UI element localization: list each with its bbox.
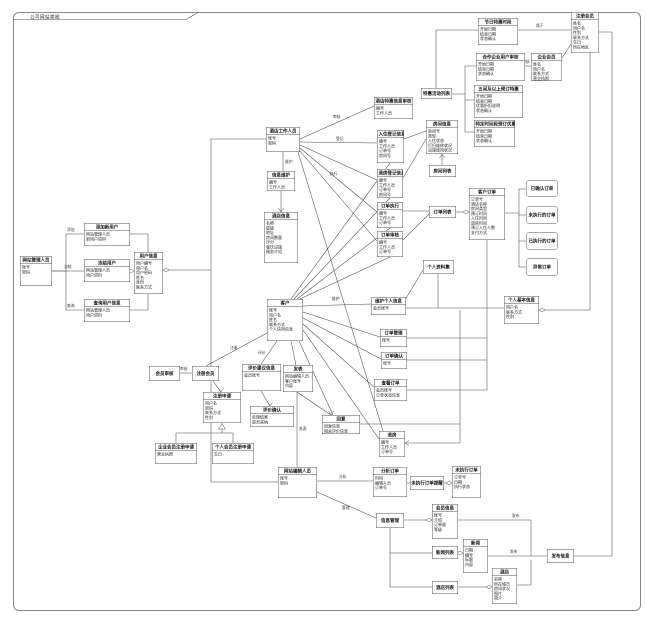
node-title: 网站编辑人员 xyxy=(279,468,317,476)
node-fields: 账号用户名姓名联系方式个人信用信息 xyxy=(268,307,303,333)
node-title: 订单确认 xyxy=(382,353,407,361)
edge-line xyxy=(403,214,429,240)
node-title: 未执行订单提醒 xyxy=(410,480,444,486)
edge-label: 登记 xyxy=(336,136,344,141)
node-reg-apply[interactable]: 注册申请用户名密码联系方式性别 xyxy=(203,392,241,423)
node-info-manage[interactable]: 信息管理 xyxy=(376,513,404,528)
edge-line xyxy=(452,66,476,94)
edge-line xyxy=(519,215,526,241)
node-fields: 开始日期结束日期状态确认 xyxy=(479,26,518,42)
edge-line xyxy=(303,324,374,387)
node-title: 特惠活动列表 xyxy=(422,91,452,97)
node-fields: 编号工作人员 xyxy=(268,179,295,191)
node-field: 性别 xyxy=(205,415,239,420)
node-title: 评价确认 xyxy=(251,407,294,415)
node-publish-info[interactable]: 发布信息 xyxy=(547,549,574,563)
node-field: 状态确认 xyxy=(478,72,523,77)
node-unexec-order[interactable]: 未执行的订单 xyxy=(526,206,558,224)
node-title: 房间列表 xyxy=(430,168,456,174)
edge-label: 查询 xyxy=(67,303,75,308)
node-field: 所在地区 xyxy=(573,45,597,50)
node-fields: 用户名密码联系方式性别 xyxy=(204,400,241,421)
node-fields: 编号工作人员 xyxy=(375,105,413,117)
node-field: 状态确认 xyxy=(476,139,513,144)
node-editor[interactable]: 网站编辑人员账号密码 xyxy=(278,467,317,498)
node-field: 工作人员 xyxy=(376,111,411,116)
node-fields: 姓名用户名联系方式营业执照 xyxy=(532,61,562,81)
node-fields: 账号 xyxy=(382,360,407,367)
node-title: 企业会员注册申请 xyxy=(156,444,197,452)
node-field: 内容 xyxy=(465,562,486,567)
edge-line xyxy=(390,553,432,587)
node-title: 已确认订单 xyxy=(527,186,558,192)
node-title: 未执行订单 xyxy=(453,467,481,475)
node-fields: 营业执照 xyxy=(156,451,197,458)
node-field: 账号 xyxy=(382,338,405,343)
node-field: 个人信用信息 xyxy=(269,327,301,332)
node-promo-list[interactable]: 特惠活动列表 xyxy=(421,88,452,99)
node-title: 酒店 xyxy=(493,569,517,577)
edge-line xyxy=(294,198,390,299)
node-fields: 编号工作人员订单号房间号 xyxy=(378,177,403,198)
node-field: 会员账号 xyxy=(373,306,404,311)
node-title: 客户订单 xyxy=(470,189,505,197)
edge-line xyxy=(291,163,390,299)
node-field: 用户资料 xyxy=(86,313,128,318)
node-title: 会员信息 xyxy=(433,505,458,513)
node-query-user[interactable]: 查询用户信息网站管理人员用户资料 xyxy=(84,299,130,322)
node-title: 维护个人信息 xyxy=(372,298,406,306)
node-fields: 网站管理人员新用户资料 xyxy=(85,231,130,243)
node-analyze-order[interactable]: 分析订单时间编辑人员订单号 xyxy=(373,467,407,497)
node-field: 生日 xyxy=(214,452,252,457)
edge-line xyxy=(519,213,526,215)
node-news[interactable]: 新闻日期编号标题内容 xyxy=(463,539,488,573)
node-reg-action[interactable]: 注册会员 xyxy=(192,366,219,381)
node-fields: 账号 xyxy=(381,337,407,344)
node-hotel-info[interactable]: 酒店信息名称星级地址房间数量评分餐饮设施服务介绍 xyxy=(264,212,298,263)
node-fields: 用户编号用户名用户密码姓名身份联系方式 xyxy=(135,260,163,291)
node-field: 服务介绍 xyxy=(266,250,296,255)
node-personal-set[interactable]: 个人资料集 xyxy=(423,260,454,274)
node-field: 用户资料 xyxy=(86,273,128,278)
node-field: 简介 xyxy=(494,596,515,601)
node-field: 相关评价信息 xyxy=(324,429,358,434)
edge-line xyxy=(390,528,432,553)
edge-line xyxy=(163,139,266,270)
node-title: 新闻 xyxy=(464,540,488,548)
node-title: 特定时间段预订优惠 xyxy=(475,121,515,129)
generalization-marker xyxy=(219,424,226,429)
edge-line xyxy=(403,139,426,178)
node-title: 冻结用户 xyxy=(85,260,130,268)
node-reply[interactable]: 回复回复信息相关评价信息 xyxy=(322,415,360,434)
node-title: 网站管理人员 xyxy=(21,257,52,265)
node-review-info[interactable]: 评价建议信息会员账号 xyxy=(242,364,281,391)
node-field: 密码 xyxy=(22,270,50,275)
node-hotel-staff[interactable]: 酒店工作人员账号密码 xyxy=(266,127,300,152)
node-unexec-detail[interactable]: 未执行订单订单号日期执行状态 xyxy=(452,466,481,498)
edge-line xyxy=(505,189,526,213)
node-title: 酒店列表 xyxy=(433,585,458,591)
node-title: 房间信息 xyxy=(427,121,458,129)
node-order-manage[interactable]: 订单管理账号 xyxy=(380,329,407,347)
node-site-admin[interactable]: 网站管理人员账号密码 xyxy=(20,256,52,286)
node-fields: 回复信息相关评价信息 xyxy=(323,423,360,434)
node-title: 会员审核 xyxy=(150,371,180,377)
node-title: 酒店特惠信息审核 xyxy=(375,98,413,106)
node-title: 节日特惠时段 xyxy=(479,19,518,27)
edge-label: 审核 xyxy=(333,114,341,119)
node-fields: 账号密码 xyxy=(279,475,317,487)
edge-line xyxy=(300,106,374,139)
node-field: 等级 xyxy=(434,527,456,532)
diamond-marker xyxy=(539,308,545,312)
node-title: 五间及以上预订特惠 xyxy=(475,86,523,94)
node-field: 订单号 xyxy=(379,250,401,255)
node-checkout-reg[interactable]: 退房登记信息编号工作人员订单号房间号 xyxy=(377,169,403,198)
node-promo-audit[interactable]: 酒店特惠信息审核编号工作人员 xyxy=(374,97,413,119)
frame-title: 公司网站类图 xyxy=(30,14,60,21)
edge-line xyxy=(436,30,478,88)
node-title: 企业会员 xyxy=(532,54,562,62)
edge-line xyxy=(297,392,331,415)
node-fields: 姓名用户名性别联系方式生日所在地区 xyxy=(572,20,599,51)
node-field: 是否采纳 xyxy=(252,420,292,425)
node-field: 房间号 xyxy=(379,153,402,158)
edge-label: 管理 xyxy=(342,505,350,510)
node-user-info[interactable]: 用户信息用户编号用户名用户密码姓名身份联系方式 xyxy=(134,252,163,294)
node-fields: 账号密码 xyxy=(267,135,300,147)
node-fields: 编号工作人员订单号房间号 xyxy=(378,138,404,159)
node-five-room-promo[interactable]: 五间及以上预订特惠开始日期结束日期优惠折扣说明状态确认 xyxy=(474,85,523,118)
node-exec-order[interactable]: 已执行的订单 xyxy=(526,232,558,250)
node-fields: 账号密码 xyxy=(21,264,52,276)
edge-label: 添加 xyxy=(67,227,75,232)
edge-label: 发布 xyxy=(510,549,518,554)
node-title: 退房 xyxy=(380,432,405,440)
node-customer[interactable]: 客户账号用户名姓名联系方式个人信用信息 xyxy=(267,299,303,341)
node-fields: 用户名联系方式性别 xyxy=(505,304,539,320)
node-checkin[interactable]: 入住登记信息编号工作人员订单号房间号 xyxy=(377,130,404,163)
edge-line xyxy=(465,94,474,100)
node-order-list[interactable]: 订单列表 xyxy=(429,206,456,218)
node-member-info[interactable]: 会员信息账号介绍订单量等级 xyxy=(432,504,458,539)
edge-label: 发布 xyxy=(512,513,520,518)
node-reg-member[interactable]: 注册会员姓名用户名性别联系方式生日所在地区 xyxy=(571,12,599,53)
edge-line xyxy=(574,32,612,556)
node-field: 营业执照 xyxy=(157,452,195,457)
node-field: 状态确认 xyxy=(480,37,516,42)
node-publish[interactable]: 发表网站编辑人员客户账号内容 xyxy=(283,365,313,392)
node-title: 注册申请 xyxy=(204,393,241,401)
edge-line xyxy=(517,560,531,585)
node-fields: 名称所在城市房间状况图片简介 xyxy=(493,576,517,602)
edge-line xyxy=(130,294,148,310)
node-title: 评价建议信息 xyxy=(243,365,281,373)
node-title: 合作企业用户审核 xyxy=(477,54,525,62)
node-member-audit[interactable]: 会员审核 xyxy=(149,366,180,381)
node-title: 订单审核 xyxy=(378,232,403,240)
node-hotel-list[interactable]: 酒店列表 xyxy=(432,581,458,594)
edge-line xyxy=(300,142,377,143)
node-field: 设施使用状况 xyxy=(428,148,456,153)
edge-label: 审核 xyxy=(180,366,188,371)
node-title: 发布信息 xyxy=(548,553,574,559)
node-title: 入住登记信息 xyxy=(378,131,404,139)
node-title: 添加新用户 xyxy=(85,224,130,232)
node-title: 订单执行 xyxy=(378,203,403,211)
node-field: 账号 xyxy=(383,361,405,366)
node-hotel[interactable]: 酒店名称所在城市房间状况图片简介 xyxy=(492,568,517,604)
node-fields: 处理结果是否采纳 xyxy=(251,414,294,426)
node-field: 会员账号 xyxy=(244,373,279,378)
node-field: 性别 xyxy=(506,315,537,320)
node-order-confirm[interactable]: 订单确认账号 xyxy=(381,352,407,369)
node-fields: 会员账号订单状态信息 xyxy=(375,387,407,399)
node-title: 查询用户信息 xyxy=(85,300,130,308)
node-corp-reg-apply[interactable]: 企业会员注册申请营业执照 xyxy=(155,443,197,464)
node-news-list[interactable]: 新闻列表 xyxy=(432,546,458,559)
node-fields: 网站管理人员用户资料 xyxy=(85,307,130,319)
node-fields: 订单号日期执行状态 xyxy=(453,474,481,490)
edge-line xyxy=(300,145,377,180)
node-view-order[interactable]: 查看订单会员账号订单状态信息 xyxy=(374,379,407,401)
node-room-list[interactable]: 房间列表 xyxy=(429,165,456,177)
node-maintain-personal[interactable]: 维护个人信息会员账号 xyxy=(371,297,406,315)
node-title: 已执行的订单 xyxy=(527,238,558,244)
edge-line xyxy=(130,234,148,252)
node-field: 执行状态 xyxy=(454,485,479,490)
node-fields: 网站编辑人员客户账号内容 xyxy=(284,373,313,389)
node-fields: 会员账号 xyxy=(372,305,406,312)
node-field: 支付方式 xyxy=(471,230,503,235)
node-personal-info[interactable]: 个人基本信息用户名联系方式性别 xyxy=(504,296,539,324)
node-field: 内容 xyxy=(285,384,311,389)
edge-label: 维护 xyxy=(285,159,293,164)
edge-line xyxy=(303,318,381,359)
node-title: 查看订单 xyxy=(375,380,407,388)
node-title: 注册会员 xyxy=(572,13,599,21)
node-fields: 房间号类型入住状态打扫维修状况设施使用状况 xyxy=(427,128,458,154)
edge-line xyxy=(562,44,571,58)
node-fields: 会员账号 xyxy=(243,372,281,379)
node-title: 新闻列表 xyxy=(433,550,458,556)
node-field: 营业执照 xyxy=(533,76,560,81)
edge-label: 分析 xyxy=(339,474,347,479)
node-title: 个人基本信息 xyxy=(505,297,539,305)
node-checkout[interactable]: 退房编号工作人员订单号 xyxy=(379,431,405,457)
edge-label: 评价 xyxy=(258,350,266,355)
diamond-marker xyxy=(163,268,169,272)
node-order-exec[interactable]: 订单执行编号工作人员订单号 xyxy=(377,202,403,228)
edge-line xyxy=(300,148,377,212)
node-add-user[interactable]: 添加新用户网站管理人员新用户资料 xyxy=(84,223,130,246)
node-review-handle[interactable]: 评价确认处理结果是否采纳 xyxy=(250,406,294,427)
edge-label: 执行 xyxy=(330,171,338,176)
node-title: 退房登记信息 xyxy=(378,170,403,178)
node-fields: 编号工作人员订单号 xyxy=(378,210,403,226)
edge-label: 维护 xyxy=(332,296,340,301)
node-personal-reg-apply[interactable]: 个人会员注册申请生日 xyxy=(212,443,254,464)
node-freeze-user[interactable]: 冻结用户网站管理人员用户资料 xyxy=(84,259,130,282)
node-field: 新用户资料 xyxy=(86,237,128,242)
node-title: 个人资料集 xyxy=(424,264,454,270)
node-title: 回复 xyxy=(323,416,360,424)
node-field: 订单状态信息 xyxy=(376,393,405,398)
node-cust-order[interactable]: 客户订单订单号酒店名称房间类型预订时间入住时间退房时间预订入住人数支付方式 xyxy=(469,188,505,240)
edge-line xyxy=(405,270,423,300)
edge-line xyxy=(303,304,371,306)
node-room-info[interactable]: 房间信息房间号类型入住状态打扫维修状况设施使用状况 xyxy=(426,120,458,154)
edge-line xyxy=(404,131,426,139)
edge-line xyxy=(291,341,296,365)
node-title: 订单列表 xyxy=(430,209,456,215)
edge-label: 属于 xyxy=(536,23,544,28)
node-field: 订单号 xyxy=(379,221,401,226)
node-field: 订单号 xyxy=(375,486,405,491)
node-fields: 开始日期结束日期优惠折扣说明状态确认 xyxy=(475,93,523,114)
node-field: 工作人员 xyxy=(269,185,293,190)
node-fields: 编号工作人员订单号 xyxy=(380,439,405,455)
node-corp-member[interactable]: 企业会员姓名用户名联系方式营业执照 xyxy=(531,53,562,81)
edge-label: 发表 xyxy=(299,426,307,431)
node-field: 订单号 xyxy=(381,450,403,455)
node-unexec-confirm[interactable]: 未执行订单提醒 xyxy=(410,476,444,490)
node-fields: 生日 xyxy=(213,451,254,458)
edge-line xyxy=(465,100,474,132)
edge-line xyxy=(317,492,376,518)
edge-label: 注册 xyxy=(230,345,238,350)
node-field: 密码 xyxy=(280,481,315,486)
node-fields: 时间编辑人员订单号 xyxy=(374,475,407,491)
node-fields: 名称星级地址房间数量评分餐饮设施服务介绍 xyxy=(265,220,298,255)
node-title: 未执行的订单 xyxy=(527,212,558,218)
edge-line xyxy=(519,241,526,267)
edge-line xyxy=(405,310,460,443)
node-fields: 账号介绍订单量等级 xyxy=(433,512,458,533)
node-fields: 网站管理人员用户资料 xyxy=(85,267,130,279)
node-field: 房间号 xyxy=(379,192,401,197)
node-confirmed-order[interactable]: 已确认订单 xyxy=(526,180,558,197)
edge-line xyxy=(300,257,390,299)
node-field: 状态确认 xyxy=(476,108,521,113)
node-fields: 开始日期结束日期状态确认 xyxy=(477,61,525,77)
edge-line xyxy=(303,312,380,337)
node-coop-audit[interactable]: 合作企业用户审核开始日期结束日期状态确认 xyxy=(476,53,525,81)
node-field: 密码 xyxy=(268,141,298,146)
node-fields: 编号工作人员订单号 xyxy=(378,239,403,255)
node-time-promo[interactable]: 特定时间段预订优惠开始日期结束日期状态确认 xyxy=(474,120,515,147)
node-title: 信息维护 xyxy=(268,172,295,180)
node-fields: 订单号酒店名称房间类型预订时间入住时间退房时间预订入住人数支付方式 xyxy=(470,196,505,236)
node-title: 信息管理 xyxy=(377,518,404,524)
node-abnormal-order[interactable]: 异常订单 xyxy=(526,258,558,276)
node-field: 联系方式 xyxy=(136,285,161,290)
node-title: 异常订单 xyxy=(527,264,558,270)
node-title: 酒店工作人员 xyxy=(267,128,300,136)
node-title: 发表 xyxy=(284,366,313,374)
node-title: 注册会员 xyxy=(193,371,219,377)
node-title: 分析订单 xyxy=(374,468,407,476)
node-title: 客户 xyxy=(268,300,303,308)
node-title: 用户信息 xyxy=(135,253,163,261)
node-fields: 日期编号标题内容 xyxy=(464,547,488,568)
node-fields: 开始日期结束日期状态确认 xyxy=(475,128,515,144)
node-order-audit[interactable]: 订单审核编号工作人员订单号 xyxy=(377,231,403,257)
node-title: 个人会员注册申请 xyxy=(213,444,254,452)
node-info-maintain[interactable]: 信息维护编号工作人员 xyxy=(267,171,295,191)
node-title: 酒店信息 xyxy=(265,213,298,221)
node-title: 订单管理 xyxy=(381,330,407,338)
edge-label: 冻结 xyxy=(64,264,72,269)
diagram-canvas[interactable]: 添加冻结查询维护审核登记执行属于审核维护注册评价审核发表分析管理发布发布 公司网… xyxy=(0,0,646,618)
node-holiday-promo[interactable]: 节日特惠时段开始日期结束日期状态确认 xyxy=(478,18,518,45)
